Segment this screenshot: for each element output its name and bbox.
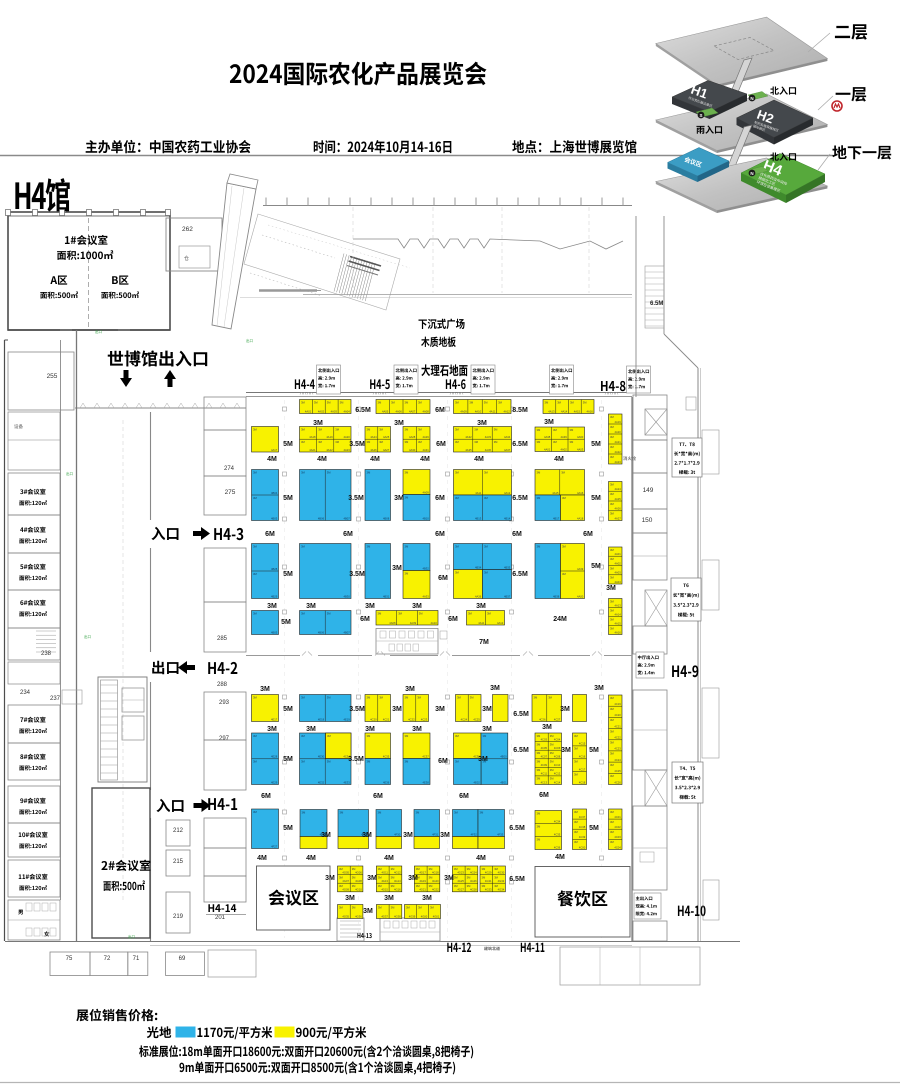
svg-text:4G15: 4G15 [381, 888, 388, 892]
svg-text:4B17: 4B17 [553, 516, 560, 520]
svg-text:4M: 4M [474, 456, 484, 463]
svg-text:4C20: 4C20 [370, 717, 377, 721]
svg-text:4E36: 4E36 [383, 780, 390, 784]
svg-text:4A19: 4A19 [615, 420, 622, 424]
svg-text:3M: 3M [363, 908, 373, 915]
svg-text:出口: 出口 [246, 338, 253, 343]
svg-text:5M: 5M [283, 571, 293, 578]
svg-text:4A05: 4A05 [382, 409, 389, 413]
svg-text:3M: 3M [422, 895, 432, 902]
svg-text:3M: 3M [394, 420, 404, 427]
svg-text:4A16: 4A16 [577, 491, 584, 495]
svg-text:4A08: 4A08 [389, 621, 396, 625]
svg-text:4A19: 4A19 [326, 435, 333, 439]
svg-text:4G12: 4G12 [394, 870, 401, 874]
svg-text:4A33: 4A33 [485, 435, 492, 439]
svg-text:4A11: 4A11 [475, 491, 482, 495]
svg-text:3M: 3M [267, 603, 277, 610]
svg-text:4B35: 4B35 [504, 565, 511, 569]
svg-text:5M: 5M [283, 495, 293, 502]
svg-text:6.5M: 6.5M [509, 825, 525, 832]
svg-text:4E29: 4E29 [271, 780, 278, 784]
svg-text:4C04: 4C04 [554, 737, 561, 741]
svg-text:285: 285 [217, 636, 228, 642]
svg-text:4G26: 4G26 [470, 879, 477, 883]
svg-text:4G31: 4G31 [485, 879, 492, 883]
svg-text:3M: 3M [594, 685, 604, 692]
svg-text:4G09: 4G09 [342, 888, 349, 892]
svg-text:6M: 6M [435, 531, 445, 538]
svg-text:3M: 3M [606, 585, 616, 592]
svg-text:4M: 4M [555, 854, 565, 861]
svg-text:4C08: 4C08 [554, 755, 561, 759]
svg-text:5M: 5M [591, 563, 601, 570]
svg-text:4M: 4M [554, 456, 564, 463]
svg-text:4C20: 4C20 [614, 713, 621, 717]
svg-text:出口: 出口 [128, 934, 135, 939]
svg-text:4C34: 4C34 [554, 819, 561, 823]
svg-text:201: 201 [215, 915, 226, 921]
svg-text:4A00: 4A00 [577, 435, 584, 439]
svg-text:6M: 6M [512, 531, 522, 538]
svg-text:4M: 4M [384, 855, 394, 862]
svg-text:4E30: 4E30 [318, 755, 325, 759]
svg-text:5M: 5M [281, 619, 291, 626]
svg-text:4G05: 4G05 [342, 870, 349, 874]
svg-text:4C24: 4C24 [614, 758, 621, 762]
svg-text:6M: 6M [435, 407, 445, 414]
svg-text:3M: 3M [440, 832, 450, 839]
svg-text:4M: 4M [306, 855, 316, 862]
svg-text:出口: 出口 [95, 329, 102, 334]
svg-text:4A20: 4A20 [615, 430, 622, 434]
svg-text:4A36: 4A36 [475, 594, 482, 598]
svg-text:4G11: 4G11 [382, 870, 389, 874]
svg-text:3M: 3M [476, 603, 486, 610]
svg-text:6M: 6M [436, 441, 446, 448]
svg-text:4G24: 4G24 [470, 870, 477, 874]
svg-text:4A15: 4A15 [615, 621, 622, 625]
svg-text:4A18: 4A18 [309, 435, 316, 439]
svg-text:4A14: 4A14 [561, 409, 568, 413]
svg-text:150: 150 [642, 517, 653, 524]
svg-text:4A27: 4A27 [615, 516, 622, 520]
svg-text:234: 234 [20, 690, 31, 696]
svg-text:5M: 5M [283, 825, 293, 832]
svg-text:4C07: 4C07 [541, 755, 548, 759]
svg-text:4G23: 4G23 [457, 870, 464, 874]
svg-text:4A03: 4A03 [577, 447, 584, 451]
svg-text:6M: 6M [343, 531, 353, 538]
svg-text:6M: 6M [438, 575, 448, 582]
svg-text:3M: 3M [478, 756, 488, 763]
svg-text:5M: 5M [589, 747, 599, 754]
svg-text:3M: 3M [367, 875, 377, 882]
svg-text:3.5M: 3.5M [349, 441, 365, 448]
svg-text:3M: 3M [365, 726, 375, 733]
svg-text:4A27: 4A27 [383, 448, 390, 452]
svg-text:4E01: 4E01 [500, 780, 507, 784]
svg-text:4A33: 4A33 [423, 594, 430, 598]
svg-text:4A13: 4A13 [548, 409, 555, 413]
svg-text:3M: 3M [405, 686, 415, 693]
svg-text:3M: 3M [321, 832, 331, 839]
svg-text:3M: 3M [365, 603, 375, 610]
svg-text:4A16: 4A16 [615, 630, 622, 634]
svg-text:4B07: 4B07 [344, 516, 351, 520]
svg-text:4E38: 4E38 [423, 780, 430, 784]
svg-text:4C03: 4C03 [614, 835, 621, 839]
svg-text:4F32: 4F32 [471, 832, 478, 836]
svg-text:4A26: 4A26 [370, 448, 377, 452]
svg-text:4C26: 4C26 [614, 780, 621, 784]
svg-text:设备: 设备 [14, 423, 23, 430]
svg-text:4C37: 4C37 [579, 815, 586, 819]
svg-text:5M: 5M [591, 441, 601, 448]
svg-text:4C00: 4C00 [579, 845, 586, 849]
svg-text:4G33: 4G33 [485, 888, 492, 892]
svg-text:6.5M: 6.5M [650, 301, 663, 307]
svg-text:4E17: 4E17 [271, 717, 278, 721]
svg-text:4C23: 4C23 [614, 747, 621, 751]
svg-text:4A28: 4A28 [409, 435, 416, 439]
svg-text:4A02: 4A02 [615, 561, 622, 565]
svg-text:6.5M: 6.5M [509, 876, 525, 883]
svg-text:4A15: 4A15 [552, 491, 559, 495]
svg-text:4B30: 4B30 [344, 594, 351, 598]
svg-text:149: 149 [643, 487, 654, 494]
svg-text:4A24: 4A24 [615, 487, 622, 491]
svg-text:3M: 3M [542, 724, 552, 731]
svg-text:4A23: 4A23 [615, 460, 622, 464]
svg-text:4A08: 4A08 [423, 409, 430, 413]
svg-text:4C04: 4C04 [614, 845, 621, 849]
svg-text:4A18: 4A18 [577, 516, 584, 520]
svg-text:4C17: 4C17 [579, 767, 586, 771]
svg-text:4B14: 4B14 [504, 516, 511, 520]
svg-text:3.5M: 3.5M [349, 571, 365, 578]
svg-text:3M: 3M [444, 875, 454, 882]
svg-text:4B06: 4B06 [318, 630, 325, 634]
svg-text:3M: 3M [267, 726, 277, 733]
svg-text:4M: 4M [257, 855, 267, 862]
svg-text:4B38: 4B38 [553, 594, 560, 598]
svg-text:293: 293 [219, 700, 230, 706]
svg-text:4C21: 4C21 [383, 717, 390, 721]
svg-text:4B04: 4B04 [271, 491, 278, 495]
svg-text:3.5M: 3.5M [349, 706, 365, 713]
svg-text:212: 212 [173, 828, 184, 834]
svg-text:4A01: 4A01 [544, 447, 551, 451]
svg-text:4A21: 4A21 [309, 448, 316, 452]
svg-text:4C22: 4C22 [408, 717, 415, 721]
svg-text:6M: 6M [539, 792, 549, 799]
svg-text:4A25: 4A25 [615, 497, 622, 501]
svg-text:6M: 6M [265, 531, 275, 538]
svg-text:出口: 出口 [66, 471, 73, 476]
svg-text:3M: 3M [260, 686, 270, 693]
svg-text:4A07: 4A07 [409, 409, 416, 413]
svg-text:4A00: 4A00 [577, 594, 584, 598]
svg-text:4A25: 4A25 [383, 435, 390, 439]
svg-text:3M: 3M [345, 895, 355, 902]
svg-text:6.5M: 6.5M [512, 441, 528, 448]
svg-text:3M: 3M [412, 603, 422, 610]
svg-text:4A04: 4A04 [615, 580, 622, 584]
svg-text:6.5M: 6.5M [512, 571, 528, 578]
svg-text:4C06: 4C06 [554, 746, 561, 750]
svg-text:S: S [699, 113, 702, 118]
svg-text:4C21: 4C21 [614, 724, 621, 728]
svg-text:4A34: 4A34 [504, 435, 511, 439]
svg-text:297: 297 [219, 736, 230, 742]
svg-text:4C37: 4C37 [422, 754, 429, 758]
svg-text:288: 288 [217, 682, 228, 688]
svg-text:6M: 6M [261, 793, 271, 800]
svg-text:4G34: 4G34 [498, 888, 505, 892]
svg-text:4G38: 4G38 [394, 914, 401, 918]
svg-text:69: 69 [179, 956, 186, 962]
svg-text:4G06: 4G06 [355, 870, 362, 874]
svg-text:4B32: 4B32 [423, 566, 430, 570]
svg-text:仓: 仓 [184, 255, 189, 262]
svg-text:3M: 3M [394, 495, 404, 502]
svg-text:4G25: 4G25 [457, 879, 464, 883]
svg-text:4G10: 4G10 [355, 888, 362, 892]
svg-text:4E18: 4E18 [318, 717, 325, 721]
svg-text:4A20: 4A20 [344, 435, 351, 439]
svg-text:4B29: 4B29 [271, 594, 278, 598]
svg-text:4G16: 4G16 [394, 888, 401, 892]
svg-text:3M: 3M [544, 419, 554, 426]
svg-text:3M: 3M [325, 875, 335, 882]
svg-text:4A11: 4A11 [478, 621, 485, 625]
svg-text:255: 255 [47, 373, 58, 380]
svg-text:4M: 4M [476, 855, 486, 862]
svg-text:6.5M: 6.5M [355, 407, 371, 414]
svg-text:4C36: 4C36 [554, 845, 561, 849]
svg-text:4B08: 4B08 [383, 516, 390, 520]
svg-text:4C22: 4C22 [614, 736, 621, 740]
svg-text:4A37: 4A37 [504, 448, 511, 452]
svg-text:N: N [750, 96, 753, 101]
svg-text:4G20: 4G20 [432, 879, 439, 883]
svg-text:6M: 6M [373, 793, 383, 800]
svg-text:4G17: 4G17 [419, 870, 426, 874]
svg-text:215: 215 [173, 859, 184, 865]
svg-text:72: 72 [104, 956, 111, 962]
svg-text:4C05: 4C05 [541, 746, 548, 750]
svg-text:4G22: 4G22 [432, 888, 439, 892]
svg-text:4C09: 4C09 [541, 763, 548, 767]
svg-text:4A02: 4A02 [561, 447, 568, 451]
svg-text:3M: 3M [306, 603, 316, 610]
svg-text:3M: 3M [362, 832, 372, 839]
svg-text:3M: 3M [306, 726, 316, 733]
svg-text:4G21: 4G21 [419, 888, 426, 892]
svg-text:4A35: 4A35 [465, 448, 472, 452]
svg-text:4A09: 4A09 [423, 490, 430, 494]
svg-text:4A03: 4A03 [331, 409, 338, 413]
svg-text:5M: 5M [589, 825, 599, 832]
svg-text:4G28: 4G28 [470, 888, 477, 892]
svg-text:4A14: 4A14 [615, 612, 622, 616]
svg-text:4A21: 4A21 [615, 440, 622, 444]
svg-text:4G00: 4G00 [421, 914, 428, 918]
svg-text:4C14: 4C14 [554, 780, 561, 784]
svg-text:4B05: 4B05 [271, 630, 278, 634]
svg-text:6M: 6M [435, 495, 445, 502]
svg-text:5M: 5M [283, 756, 293, 763]
svg-text:219: 219 [173, 914, 184, 920]
svg-text:4G08: 4G08 [355, 879, 362, 883]
svg-text:4A22: 4A22 [615, 450, 622, 454]
svg-text:4C01: 4C01 [614, 815, 621, 819]
svg-text:4C24: 4C24 [461, 717, 468, 721]
svg-text:4G13: 4G13 [381, 879, 388, 883]
svg-text:3M: 3M [560, 706, 570, 713]
svg-text:4B05: 4B05 [271, 516, 278, 520]
svg-text:4A26: 4A26 [615, 507, 622, 511]
svg-text:4A22: 4A22 [326, 448, 333, 452]
svg-text:4G19: 4G19 [419, 879, 426, 883]
svg-text:4A29: 4A29 [423, 435, 430, 439]
svg-text:4F31: 4F31 [432, 832, 439, 836]
svg-text:3M: 3M [384, 895, 394, 902]
svg-text:4C23: 4C23 [421, 717, 428, 721]
svg-text:4G27: 4G27 [457, 888, 464, 892]
svg-text:3.5M: 3.5M [348, 756, 364, 763]
svg-text:4G14: 4G14 [394, 879, 401, 883]
svg-text:6M: 6M [360, 616, 370, 623]
svg-text:6M: 6M [459, 793, 469, 800]
svg-text:4B10: 4B10 [423, 516, 430, 520]
svg-text:3M: 3M [490, 685, 500, 692]
svg-text:N: N [750, 171, 753, 176]
svg-text:4C27: 4C27 [554, 717, 561, 721]
svg-text:4A13: 4A13 [615, 603, 622, 607]
svg-text:4A01: 4A01 [615, 552, 622, 556]
svg-text:4E33: 4E33 [344, 780, 351, 784]
svg-text:4C35: 4C35 [554, 832, 561, 836]
svg-text:3M: 3M [408, 875, 418, 882]
svg-text:275: 275 [225, 489, 236, 496]
svg-text:4G29: 4G29 [485, 870, 492, 874]
svg-text:4G37: 4G37 [381, 914, 388, 918]
svg-text:4B06: 4B06 [318, 516, 325, 520]
svg-text:4C18: 4C18 [579, 780, 586, 784]
svg-text:4B28: 4B28 [271, 567, 278, 571]
svg-text:4B07: 4B07 [344, 630, 351, 634]
svg-text:5M: 5M [591, 495, 601, 502]
svg-text:3M: 3M [477, 420, 487, 427]
svg-text:3M: 3M [482, 706, 492, 713]
svg-text:4A11: 4A11 [489, 409, 496, 413]
svg-text:4A36: 4A36 [485, 448, 492, 452]
svg-text:238: 238 [41, 651, 52, 657]
svg-text:6M: 6M [583, 531, 593, 538]
svg-text:4F27: 4F27 [271, 844, 278, 848]
svg-text:274: 274 [224, 466, 235, 472]
svg-text:4C13: 4C13 [541, 780, 548, 784]
svg-text:4C16: 4C16 [579, 755, 586, 759]
svg-text:4A39: 4A39 [561, 435, 568, 439]
svg-text:4A09: 4A09 [410, 621, 417, 625]
svg-text:4A24: 4A24 [370, 435, 377, 439]
svg-text:24M: 24M [553, 616, 567, 623]
svg-text:4A31: 4A31 [423, 448, 430, 452]
svg-text:4A12: 4A12 [504, 409, 511, 413]
svg-text:3M: 3M [392, 565, 402, 572]
svg-text:6M: 6M [438, 758, 448, 765]
svg-text:4A15: 4A15 [574, 409, 581, 413]
svg-text:4F30: 4F30 [394, 832, 401, 836]
svg-text:3M: 3M [313, 420, 323, 427]
svg-text:6.5M: 6.5M [513, 711, 529, 718]
svg-text:6.5M: 6.5M [512, 495, 528, 502]
svg-text:262: 262 [182, 226, 193, 233]
svg-text:4A02: 4A02 [318, 409, 325, 413]
svg-text:4A10: 4A10 [431, 621, 438, 625]
svg-text:3M: 3M [561, 747, 571, 754]
svg-text:4E19: 4E19 [344, 717, 351, 721]
svg-text:4B34: 4B34 [475, 565, 482, 569]
svg-text:4G07: 4G07 [342, 879, 349, 883]
svg-text:4A01: 4A01 [305, 409, 312, 413]
svg-text:4G01: 4G01 [433, 914, 440, 918]
svg-text:4G36: 4G36 [355, 914, 362, 918]
svg-text:237: 237 [50, 696, 61, 702]
svg-text:4A09: 4A09 [460, 409, 467, 413]
svg-text:3M: 3M [482, 726, 492, 733]
svg-text:4M: 4M [267, 456, 277, 463]
svg-text:6M: 6M [448, 616, 458, 623]
svg-text:4G39: 4G39 [409, 914, 416, 918]
svg-text:4A38: 4A38 [544, 435, 551, 439]
svg-text:3M: 3M [412, 726, 422, 733]
svg-text:4G30: 4G30 [498, 870, 505, 874]
svg-text:4F33: 4F33 [497, 832, 504, 836]
svg-text:4G18: 4G18 [432, 870, 439, 874]
svg-text:4C11: 4C11 [541, 772, 548, 776]
svg-text:5M: 5M [283, 706, 293, 713]
svg-text:4C39: 4C39 [579, 835, 586, 839]
svg-text:3M: 3M [435, 706, 445, 713]
svg-text:4C26: 4C26 [539, 717, 546, 721]
svg-text:3M: 3M [392, 706, 402, 713]
svg-text:75: 75 [66, 956, 73, 962]
svg-text:4C10: 4C10 [554, 763, 561, 767]
svg-text:4A23: 4A23 [344, 448, 351, 452]
svg-text:4A16: 4A16 [587, 409, 594, 413]
svg-text:4B31: 4B31 [383, 594, 390, 598]
svg-text:4C35: 4C35 [383, 754, 390, 758]
svg-text:4A10: 4A10 [475, 409, 482, 413]
svg-text:3.5M: 3.5M [348, 495, 364, 502]
svg-text:5M: 5M [283, 441, 293, 448]
svg-text:4G32: 4G32 [498, 879, 505, 883]
svg-text:4C03: 4C03 [541, 737, 548, 741]
svg-text:4C12: 4C12 [554, 772, 561, 776]
svg-text:4A06: 4A06 [396, 409, 403, 413]
svg-text:4E32: 4E32 [318, 780, 325, 784]
svg-text:4A04: 4A04 [344, 409, 351, 413]
svg-text:4A17: 4A17 [271, 448, 278, 452]
svg-text:4C15: 4C15 [579, 742, 586, 746]
svg-text:4G35: 4G35 [342, 914, 349, 918]
svg-text:4M: 4M [370, 456, 380, 463]
svg-text:6.5M: 6.5M [513, 747, 529, 754]
